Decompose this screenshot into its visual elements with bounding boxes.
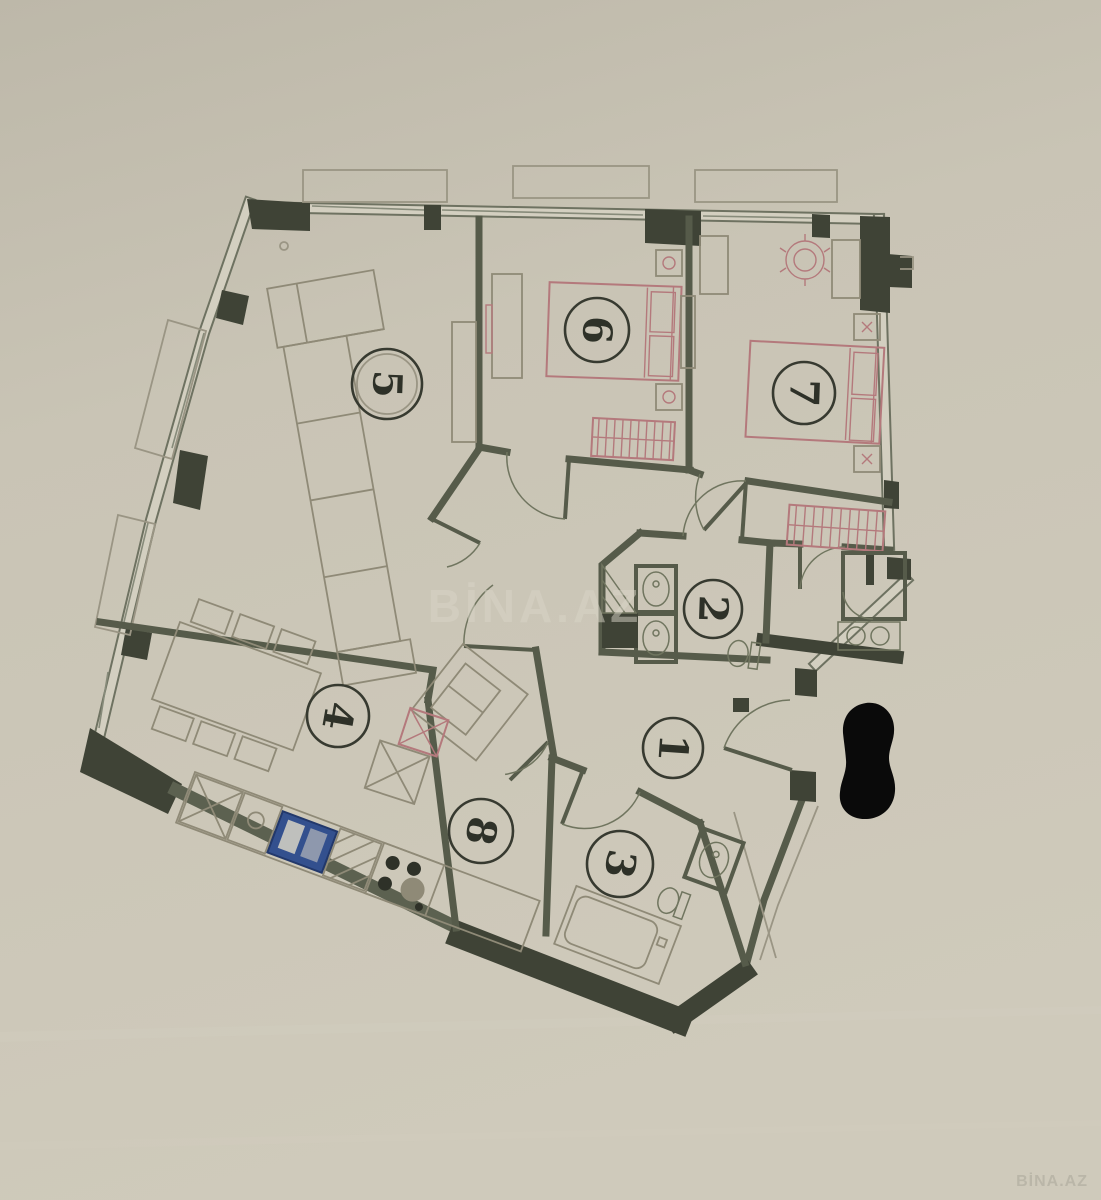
svg-text:2: 2	[689, 594, 737, 623]
watermark-center: BİNA.AZ	[428, 580, 643, 632]
svg-text:5: 5	[363, 369, 411, 398]
svg-text:6: 6	[573, 315, 621, 344]
redaction-blob	[840, 703, 895, 819]
svg-text:1: 1	[648, 732, 697, 763]
watermark-corner: BİNA.AZ	[1016, 1172, 1088, 1190]
svg-text:7: 7	[780, 378, 828, 407]
floor-plan-photo: 1 2 3 4 5 6 7 8 BİNA.AZ BİNA.AZ	[0, 0, 1101, 1200]
floor-plan-drawing: 1 2 3 4 5 6 7 8 BİNA.AZ BİNA.AZ	[0, 0, 1101, 1200]
